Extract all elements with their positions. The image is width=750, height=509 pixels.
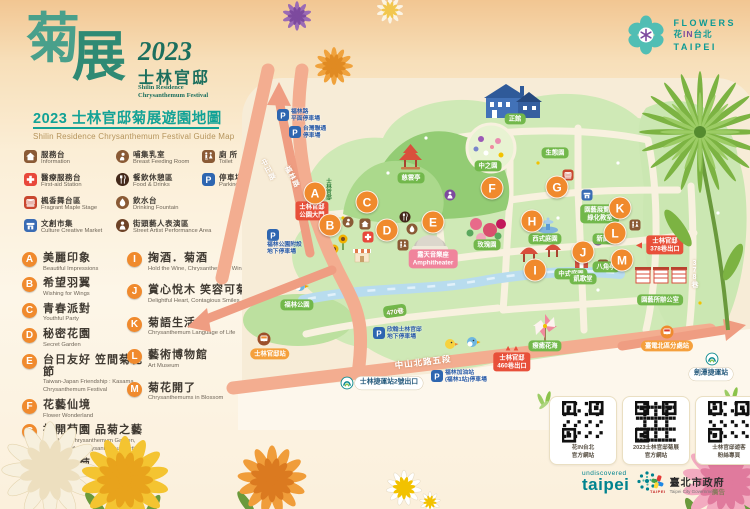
title-underline	[33, 127, 219, 129]
zone-legend-item-E: E台日友好 笠間菊花節Taiwan-Japan Friendship : Kas…	[22, 354, 142, 395]
logo-site-en1: Shilin Residence	[138, 84, 184, 91]
stage-icon	[24, 196, 37, 209]
zone-badge: M	[127, 382, 142, 397]
facility-label-en: Drinking Fountain	[133, 205, 178, 213]
zone-legend-item-B: B希望羽翼Wishing for Wings	[22, 277, 142, 298]
map-marker-B: B	[319, 214, 342, 237]
bus-icon	[661, 326, 674, 339]
facility-label-zh: 餐飲休憩區	[133, 173, 173, 182]
facility-legend-item: 哺集乳室Breast Feeding Room	[116, 150, 189, 167]
advertisement-note: 廣告	[712, 486, 725, 496]
zone-legend-item-F: F花藝仙境Flower Wonderland	[22, 399, 142, 420]
page-subtitle: Shilin Residence Chrysanthemum Festival …	[33, 132, 234, 141]
exit-label: 士林官邸460巷出口	[493, 352, 530, 371]
facility-label-en: Toilet	[219, 159, 238, 167]
facility-label-zh: 街頭藝人表演區	[133, 219, 211, 228]
road-label: 福林路	[282, 164, 302, 190]
facility-label-en: First-aid Station	[41, 182, 82, 190]
parking-lot-label: P台灣聯通停車場	[289, 126, 326, 140]
map-marker-K: K	[609, 197, 632, 220]
mrt-icon	[706, 353, 719, 366]
facility-legend-item: 餐飲休憩區Food & Drinks	[116, 173, 173, 190]
map-marker-F: F	[481, 177, 504, 200]
mrt-station-label: 士林捷運站2號出口	[355, 377, 423, 390]
zone-badge: A	[22, 252, 37, 267]
map-marker-L: L	[604, 222, 627, 245]
parking-lot-label: P福林公園附設地下停車場	[267, 229, 302, 256]
svg-text:P: P	[270, 231, 276, 240]
bus-icon	[258, 333, 271, 346]
first-aid-icon	[24, 173, 37, 186]
facility-label-zh: 廁 所	[219, 150, 238, 159]
road-label: 378巷	[689, 260, 699, 288]
svg-text:P: P	[206, 175, 212, 185]
road-label: 中山北路五段	[394, 353, 452, 372]
zone-label-en: Unveil the Chrysanthemum Garden, Appreci…	[43, 438, 155, 454]
qr-code	[708, 401, 750, 443]
zone-label-en: Recreating Chrysanthemums	[43, 471, 155, 479]
area-label: 園藝所辦公室	[637, 294, 683, 305]
zone-legend-column-1: A美麗印象Beautiful ImpressionsB希望羽翼Wishing f…	[22, 252, 142, 483]
qr-code	[562, 401, 604, 443]
festival-logo: 菊 展 2023 士林官邸 Shilin Residence Chrysanth…	[26, 8, 236, 103]
facility-label-zh: 醫療服務台	[41, 173, 82, 182]
facility-label-en: Street Artist Performance Area	[133, 228, 211, 236]
zone-legend-item-H: H再創新菊Recreating Chrysanthemums	[22, 458, 142, 479]
map-marker-E: E	[422, 211, 445, 234]
parking-icon: P	[202, 173, 215, 186]
area-label: 中之園	[475, 160, 502, 171]
zone-badge: E	[22, 354, 37, 369]
zone-legend-item-J: J賞心悅木 笑容可菊Delightful Heart, Contagious S…	[127, 284, 247, 305]
facility-label-en: Food & Drinks	[133, 182, 173, 190]
logo-site-en2: Chrysanthemum Festival	[138, 92, 208, 99]
logo-char-zhan: 展	[72, 30, 126, 84]
road-label: 470巷	[383, 303, 408, 318]
drinking-fountain-icon	[407, 224, 418, 235]
facility-label-en: Fragrant Maple Stage	[41, 205, 97, 213]
zone-badge: G	[22, 424, 37, 439]
zone-badge: L	[127, 349, 142, 364]
facility-label-zh: 文創市集	[41, 219, 102, 228]
first-aid-icon	[363, 232, 374, 243]
flower-logo-icon	[625, 14, 667, 56]
breast-feeding-icon	[343, 217, 354, 228]
svg-text:P: P	[292, 128, 298, 137]
zone-legend-item-G: G打開菊園 品菊之藝Unveil the Chrysanthemum Garde…	[22, 424, 142, 453]
map-marker-C: C	[356, 191, 379, 214]
parking-icon: P	[277, 109, 289, 121]
map-marker-G: G	[546, 176, 569, 199]
zone-badge: I	[127, 252, 142, 267]
facility-label-zh: 服務台	[41, 150, 70, 159]
area-label: 療癒花海	[528, 340, 561, 351]
bus-stop-label: 士林官邸站	[250, 348, 289, 359]
facility-legend-item: 醫療服務台First-aid Station	[24, 173, 82, 190]
zone-legend-item-K: K菊語生活Chrysanthemum Language of Life	[127, 317, 247, 338]
facility-legend-item: 飲水台Drinking Fountain	[116, 196, 178, 213]
parking-icon: P	[289, 126, 301, 138]
map-marker-H: H	[521, 210, 544, 233]
undiscovered-taipei-logo: undiscovered taipei	[582, 468, 660, 494]
area-label: 露天音樂座Amphitheater	[409, 249, 458, 268]
map-marker-J: J	[572, 241, 595, 264]
zone-legend-item-C: C青春派對Youthful Party	[22, 303, 142, 324]
map-marker-I: I	[524, 259, 547, 282]
mrt-icon	[341, 377, 354, 390]
toilet-icon	[630, 220, 641, 231]
street-artist-icon	[445, 190, 456, 201]
facility-label-en: Information	[41, 159, 70, 167]
taipei-city-mark-icon: TAIPEI	[650, 474, 666, 494]
svg-text:P: P	[434, 372, 440, 381]
facility-legend-item: 文創市集Culture Creative Market	[24, 219, 102, 236]
brand-line3: TAIPEI	[674, 41, 737, 53]
market-icon	[24, 219, 37, 232]
area-label: 慈雲亭	[398, 172, 425, 183]
area-label: 西式庭園	[528, 233, 561, 244]
qr-code	[635, 401, 677, 443]
zone-label-zh: 打開菊園 品菊之藝	[43, 424, 155, 436]
mrt-station-label: 劍潭捷運站	[689, 368, 733, 381]
brand-line1: FLOWERS	[674, 17, 737, 29]
street-artist-icon	[116, 219, 129, 232]
facility-label-zh: 楓香舞台區	[41, 196, 97, 205]
parking-icon: P	[373, 327, 385, 339]
parking-icon: P	[431, 370, 443, 382]
toilet-icon	[202, 150, 215, 163]
area-label: 玫瑰園	[474, 239, 501, 250]
map-marker-M: M	[611, 249, 634, 272]
zone-badge: J	[127, 284, 142, 299]
page-title: 2023 士林官邸菊展遊園地圖	[33, 107, 222, 128]
taipei-text: taipei	[582, 477, 629, 492]
facility-label-zh: 飲水台	[133, 196, 178, 205]
facility-label-en: Breast Feeding Room	[133, 159, 189, 167]
qr-card: 花IN台北官方網站	[549, 396, 617, 465]
bus-stop-label: 臺電北區分處站	[641, 340, 693, 351]
road-label: 中正路	[258, 157, 278, 183]
brand-line2: 花IN台北	[674, 29, 737, 40]
qr-card: 2023士林官邸菊展官方網站	[622, 396, 690, 465]
exit-label: 士林官邸378巷出口	[646, 235, 683, 254]
festival-guide-map-poster: { "logo": { "main_zh_1": "菊", "main_zh_2…	[0, 0, 750, 509]
qr-code-section: 花IN台北官方網站2023士林官邸菊展官方網站士林官邸遊客粉絲專頁	[549, 396, 750, 465]
area-label: 凱歌堂	[570, 273, 597, 284]
qr-card: 士林官邸遊客粉絲專頁	[695, 396, 750, 465]
zone-label-zh: 再創新菊	[43, 458, 155, 470]
parking-icon: P	[267, 229, 279, 241]
breast-feeding-icon	[116, 150, 129, 163]
facility-legend-item: 楓香舞台區Fragrant Maple Stage	[24, 196, 97, 213]
area-label: 福林公園	[280, 299, 313, 310]
logo-year: 2023	[138, 36, 192, 67]
facility-legend: 服務台Information醫療服務台First-aid Station楓香舞台…	[24, 150, 254, 246]
market-icon	[582, 190, 593, 201]
facility-legend-item: 服務台Information	[24, 150, 70, 167]
map-marker-D: D	[376, 219, 399, 242]
zone-badge: H	[22, 458, 37, 473]
zone-badge: C	[22, 303, 37, 318]
svg-text:P: P	[376, 329, 382, 338]
parking-lot-label: P福林路平面停車場	[277, 109, 320, 123]
facility-legend-item: 廁 所Toilet	[202, 150, 238, 167]
facility-label-zh: 哺集乳室	[133, 150, 189, 159]
svg-text:P: P	[280, 111, 286, 120]
drinking-fountain-icon	[116, 196, 129, 209]
park-map: 中正路福林路中山北路五段470巷378巷士林官邸正館慈雲亭中之園生態園玫瑰園西式…	[248, 78, 750, 430]
exit-arrow-icon: ◀	[636, 241, 642, 250]
flowers-in-taipei-logo: FLOWERS 花IN台北 TAIPEI	[625, 14, 737, 56]
zone-legend-item-A: A美麗印象Beautiful Impressions	[22, 252, 142, 273]
zone-badge: B	[22, 277, 37, 292]
area-label: 生態園	[542, 147, 569, 158]
zone-badge: F	[22, 399, 37, 414]
information-icon	[360, 219, 371, 230]
food-drinks-icon	[400, 212, 411, 223]
parking-lot-label: P福林加油站(福林1站)停車場	[431, 370, 487, 384]
facility-label-en: Culture Creative Market	[41, 228, 102, 236]
parking-lot-label: P欣翰士林官邸地下停車場	[373, 327, 422, 341]
zone-legend-item-L: L藝術博物館Art Museum	[127, 349, 247, 370]
zone-badge: D	[22, 328, 37, 343]
facility-legend-item: 街頭藝人表演區Street Artist Performance Area	[116, 219, 211, 236]
taipei-mark-text: TAIPEI	[650, 489, 666, 494]
toilet-icon	[398, 240, 409, 251]
exit-arrow-icon: ▲▲	[504, 344, 520, 353]
zone-badge: K	[127, 317, 142, 332]
food-drinks-icon	[116, 173, 129, 186]
zone-legend-item-D: D秘密花園Secret Garden	[22, 328, 142, 349]
area-label: 正館	[505, 113, 526, 124]
information-icon	[24, 150, 37, 163]
map-marker-A: A	[304, 182, 327, 205]
